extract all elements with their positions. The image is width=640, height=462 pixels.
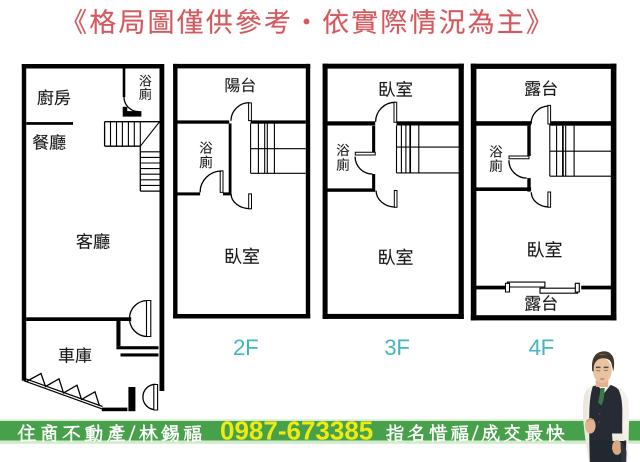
svg-text:4F: 4F — [529, 335, 554, 360]
svg-text:2F: 2F — [233, 335, 258, 360]
svg-text:0987-673385: 0987-673385 — [220, 416, 373, 446]
svg-text:3F: 3F — [384, 335, 409, 360]
